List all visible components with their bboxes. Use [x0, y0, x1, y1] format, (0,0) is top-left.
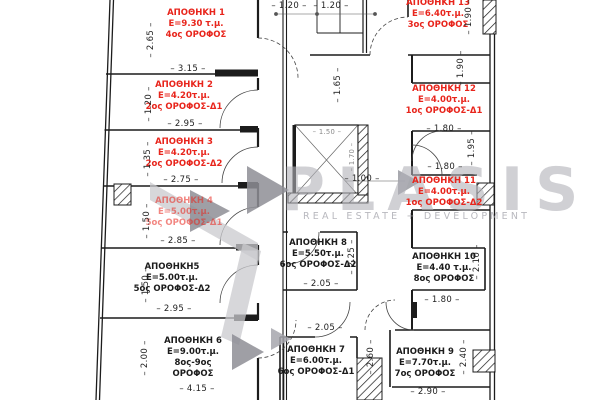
unit-label-3: ΑΠΟΘΗΚΗ 3Ε=4.20τ.μ.2ος ΟΡΟΦΟΣ-Δ2 [146, 137, 223, 170]
unit-4-floor: 5ος ΟΡΟΦΟΣ-Δ1 [146, 218, 223, 229]
unit-12-name: ΑΠΟΘΗΚΗ 12 [406, 84, 483, 95]
dimension-label: 1.70 [348, 143, 356, 172]
dimension-label: 2.00 [140, 340, 150, 375]
unit-6-floor2: ΟΡΟΦΟΣ [164, 369, 222, 380]
unit-3-area: Ε=4.20τ.μ. [146, 148, 223, 159]
dimension-label: 1.35 [143, 141, 153, 176]
unit-13-floor: 3ος ΟΡΟΦΟΣ [406, 20, 470, 31]
floor-plan-canvas: PLASIS REAL ESTATE + DEVELOPMENT ΑΠΟΘΗΚΗ… [0, 0, 600, 400]
unit-7-floor: 6ος ΟΡΟΦΟΣ-Δ1 [278, 367, 355, 378]
dimension-label: 2.10 [472, 244, 482, 279]
dimension-label: 2.85 [160, 236, 195, 246]
unit-9-floor: 7ος ΟΡΟΦΟΣ [395, 369, 456, 380]
dimension-label: 1.90 [464, 0, 474, 35]
unit-2-name: ΑΠΟΘΗΚΗ 2 [146, 80, 223, 91]
unit-8-area: Ε=5.50τ.μ. [280, 249, 357, 260]
dimension-label: 1.65 [333, 67, 343, 102]
dimension-label: 2.25 [347, 239, 357, 274]
floor-plan-drawing [0, 0, 600, 400]
unit-label-13: ΑΠΟΘΗΚΗ 13Ε=6.40τ.μ.3ος ΟΡΟΦΟΣ [406, 0, 470, 31]
dimension-label: 1.50 [141, 267, 151, 302]
dimension-label: 2.05 [303, 279, 338, 289]
dimension-label: 2.90 [410, 387, 445, 397]
unit-7-area: Ε=6.00τ.μ. [278, 356, 355, 367]
unit-3-floor: 2ος ΟΡΟΦΟΣ-Δ2 [146, 159, 223, 170]
dimension-label: 2.40 [459, 339, 469, 374]
unit-label-7: ΑΠΟΘΗΚΗ 7Ε=6.00τ.μ.6ος ΟΡΟΦΟΣ-Δ1 [278, 345, 355, 378]
unit-label-1: ΑΠΟΘΗΚΗ 1Ε=9.30 τ.μ.4ος ΟΡΟΦΟΣ [166, 8, 227, 41]
unit-label-2: ΑΠΟΘΗΚΗ 2Ε=4.20τ.μ.2ος ΟΡΟΦΟΣ-Δ1 [146, 80, 223, 113]
dimension-label: 1.20 [313, 1, 348, 11]
unit-6-name: ΑΠΟΘΗΚΗ 6 [164, 336, 222, 347]
unit-2-floor: 2ος ΟΡΟΦΟΣ-Δ1 [146, 102, 223, 113]
unit-1-name: ΑΠΟΘΗΚΗ 1 [166, 8, 227, 19]
unit-8-name: ΑΠΟΘΗΚΗ 8 [280, 238, 357, 249]
dimension-label: 1.95 [467, 130, 477, 165]
unit-9-area: Ε=7.70τ.μ. [395, 358, 456, 369]
dimension-label: 2.75 [163, 175, 198, 185]
unit-13-name: ΑΠΟΘΗΚΗ 13 [406, 0, 470, 9]
unit-6-floor: 8ος-9ος [164, 358, 222, 369]
dimension-label: 1.80 [424, 295, 459, 305]
dimension-label: 1.20 [144, 86, 154, 121]
unit-9-name: ΑΠΟΘΗΚΗ 9 [395, 347, 456, 358]
dimension-label: 1.80 [426, 124, 461, 134]
unit-10-area: Ε=4.40 τ.μ. [412, 263, 476, 274]
dimension-label: 3.15 [170, 64, 205, 74]
unit-1-area: Ε=9.30 τ.μ. [166, 19, 227, 30]
unit-13-area: Ε=6.40τ.μ. [406, 9, 470, 20]
unit-2-area: Ε=4.20τ.μ. [146, 91, 223, 102]
unit-12-floor: 1ος ΟΡΟΦΟΣ-Δ1 [406, 106, 483, 117]
unit-label-9: ΑΠΟΘΗΚΗ 9Ε=7.70τ.μ.7ος ΟΡΟΦΟΣ [395, 347, 456, 380]
dimension-label: 2.95 [167, 119, 202, 129]
unit-11-area: Ε=4.00τ.μ. [406, 187, 483, 198]
dimension-label: 2.05 [307, 323, 342, 333]
unit-label-10: ΑΠΟΘΗΚΗ 10Ε=4.40 τ.μ.8ος ΟΡΟΦΟΣ [412, 252, 476, 285]
dimension-label: 1.20 [271, 1, 306, 11]
dimension-label: 2.65 [146, 22, 156, 57]
unit-8-floor: 6ος ΟΡΟΦΟΣ-Δ2 [280, 260, 357, 271]
unit-11-name: ΑΠΟΘΗΚΗ 11 [406, 176, 483, 187]
unit-10-floor: 8ος ΟΡΟΦΟΣ [412, 274, 476, 285]
unit-11-floor: 1ος ΟΡΟΦΟΣ-Δ2 [406, 198, 483, 209]
unit-label-8: ΑΠΟΘΗΚΗ 8Ε=5.50τ.μ.6ος ΟΡΟΦΟΣ-Δ2 [280, 238, 357, 271]
dimension-label: 4.15 [179, 384, 214, 394]
dimension-label: 1.50 [142, 203, 152, 238]
dimension-label: 1.50 [313, 128, 342, 136]
unit-12-area: Ε=4.00τ.μ. [406, 95, 483, 106]
unit-4-name: ΑΠΟΘΗΚΗ 4 [146, 196, 223, 207]
dimension-label: 2.95 [156, 304, 191, 314]
dimension-label: 1.90 [456, 50, 466, 85]
dimension-label: 2.60 [366, 339, 376, 374]
unit-label-6: ΑΠΟΘΗΚΗ 6Ε=9.00τ.μ.8ος-9οςΟΡΟΦΟΣ [164, 336, 222, 380]
unit-4-area: Ε=5.00τ.μ. [146, 207, 223, 218]
unit-3-name: ΑΠΟΘΗΚΗ 3 [146, 137, 223, 148]
unit-label-4: ΑΠΟΘΗΚΗ 4Ε=5.00τ.μ.5ος ΟΡΟΦΟΣ-Δ1 [146, 196, 223, 229]
unit-6-area: Ε=9.00τ.μ. [164, 347, 222, 358]
dimension-label: 1.00 [344, 174, 379, 184]
unit-label-11: ΑΠΟΘΗΚΗ 11Ε=4.00τ.μ.1ος ΟΡΟΦΟΣ-Δ2 [406, 176, 483, 209]
dimension-label: 1.80 [427, 162, 462, 172]
unit-10-name: ΑΠΟΘΗΚΗ 10 [412, 252, 476, 263]
unit-1-floor: 4ος ΟΡΟΦΟΣ [166, 30, 227, 41]
unit-7-name: ΑΠΟΘΗΚΗ 7 [278, 345, 355, 356]
unit-label-12: ΑΠΟΘΗΚΗ 12Ε=4.00τ.μ.1ος ΟΡΟΦΟΣ-Δ1 [406, 84, 483, 117]
